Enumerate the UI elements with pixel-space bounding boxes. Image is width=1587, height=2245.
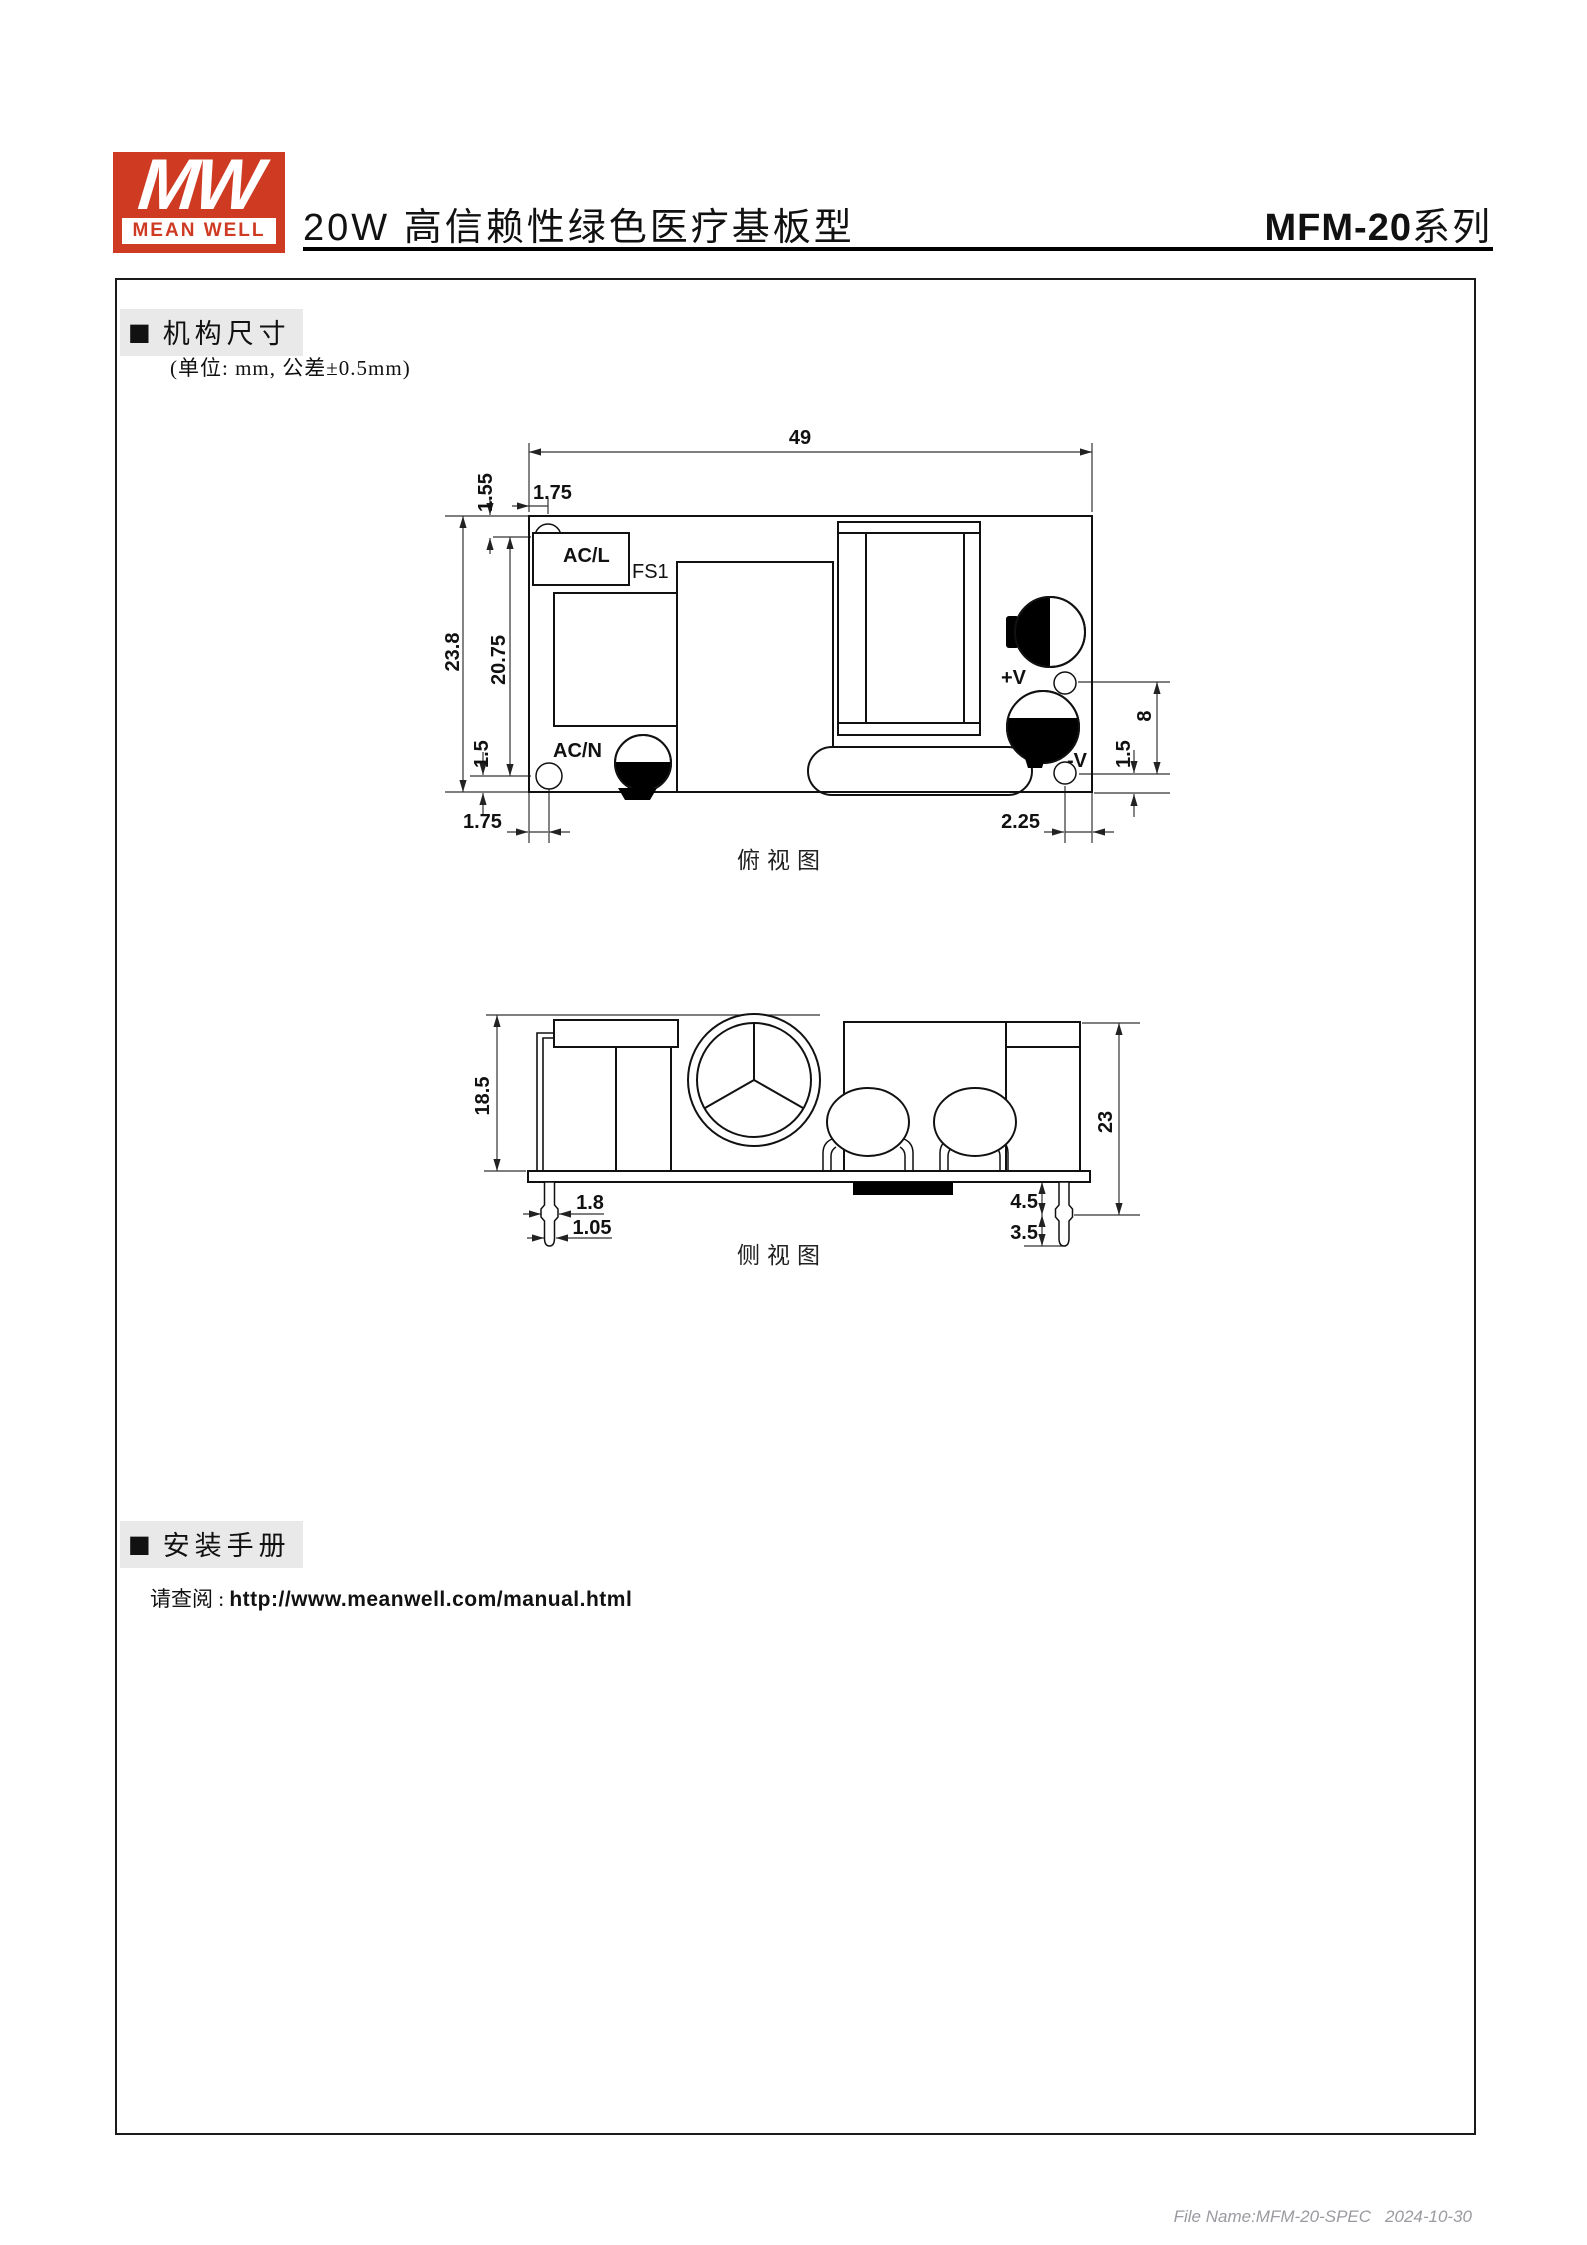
toroid-inductor: [688, 1014, 820, 1146]
dim-hole-offset-y-bottom: 1.5: [471, 740, 493, 768]
ac-pin-side: [541, 1182, 558, 1246]
title-underline: [303, 247, 1493, 251]
label-acn: AC/N: [553, 740, 602, 762]
section-installation-header: ■ 安装手册: [120, 1521, 303, 1568]
dim-hole-offset-y-top: 1.55: [475, 473, 497, 512]
series-model: MFM-20: [1265, 207, 1412, 249]
acn-pin-hole: [536, 763, 562, 789]
datasheet-page: MW MEAN WELL 20W 高信赖性绿色医疗基板型 MFM-20系列 ■ …: [0, 0, 1587, 2245]
dim-hole-span: 20.75: [488, 635, 510, 685]
unit-note: (单位: mm, 公差±0.5mm): [170, 352, 411, 382]
manual-prefix: 请查阅 :: [150, 1587, 229, 1611]
page-title: 20W 高信赖性绿色医疗基板型: [303, 196, 855, 251]
dim-pin-width: 1.05: [573, 1217, 612, 1239]
top-view-drawing: 49 1.75 1.55 23.8 20.75 1.5 1.75 2.25 8 …: [430, 415, 1190, 885]
dc-pin-side: [1056, 1182, 1073, 1246]
label-vplus: +V: [1001, 667, 1027, 689]
side-view-caption: 侧视图: [737, 1243, 827, 1268]
dim-pin-tip: 3.5: [1010, 1222, 1038, 1244]
pcb-bar-side: [528, 1171, 1090, 1182]
series-suffix: 系列: [1412, 207, 1492, 249]
dim-hole-offset-x-bottom: 1.75: [463, 811, 502, 833]
dim-pin-span: 8: [1134, 710, 1156, 721]
dim-pin-offset-bottom: 1.5: [1113, 740, 1135, 768]
dim-component-height: 18.5: [472, 1077, 494, 1116]
footer-date: 2024-10-30: [1385, 2207, 1472, 2226]
film-capacitor-left: [823, 1088, 913, 1171]
manual-url-link[interactable]: http://www.meanwell.com/manual.html: [229, 1588, 632, 1611]
series-name: MFM-20系列: [1265, 196, 1492, 251]
dim-pin-offset-right: 2.25: [1001, 811, 1040, 833]
footer-filename: File Name:MFM-20-SPEC: [1174, 2207, 1371, 2226]
input-transformer: [554, 593, 677, 726]
capacitor-bottom-left: [615, 735, 671, 800]
logo-mw-glyph: MW: [109, 144, 290, 226]
manual-reference-line: 请查阅 : http://www.meanwell.com/manual.htm…: [150, 1583, 632, 1613]
dim-pin-standoff: 4.5: [1010, 1191, 1038, 1213]
logo-brand-strip: MEAN WELL: [122, 218, 276, 244]
section-installation-label: 安装手册: [163, 1524, 291, 1563]
film-capacitor-right: [934, 1088, 1016, 1171]
solder-pad-block: [853, 1182, 953, 1195]
output-transformer: [838, 522, 980, 735]
label-acl: AC/L: [563, 545, 610, 567]
footer-fileinfo: File Name:MFM-20-SPEC2024-10-30: [900, 2207, 1472, 2227]
label-vminus: -V: [1067, 750, 1088, 772]
top-view-caption: 俯视图: [737, 848, 827, 873]
section-mechanical-header: ■ 机构尺寸: [120, 309, 303, 356]
horizontal-capacitor: [808, 747, 1032, 795]
section-bullet-icon: ■: [128, 318, 151, 346]
center-component: [677, 562, 833, 792]
section-mechanical-label: 机构尺寸: [163, 312, 291, 351]
dim-pin-crimp-width: 1.8: [576, 1192, 604, 1214]
side-view-drawing: 18.5 23 4.5 3.5 1.8 1.05: [440, 985, 1200, 1285]
brand-name: MEAN WELL: [132, 220, 265, 242]
meanwell-logo: MW MEAN WELL: [113, 152, 285, 253]
dim-board-width: 49: [789, 427, 811, 449]
dim-hole-offset-x-top: 1.75: [533, 482, 572, 504]
section-bullet-icon: ■: [128, 1530, 151, 1558]
vplus-pin-hole: [1054, 672, 1076, 694]
dim-overall-height: 23: [1095, 1111, 1117, 1133]
dim-board-height: 23.8: [442, 633, 464, 672]
capacitor-top-right: [1006, 597, 1085, 667]
transformer-side: [537, 1020, 678, 1171]
label-fs1: FS1: [632, 561, 669, 583]
